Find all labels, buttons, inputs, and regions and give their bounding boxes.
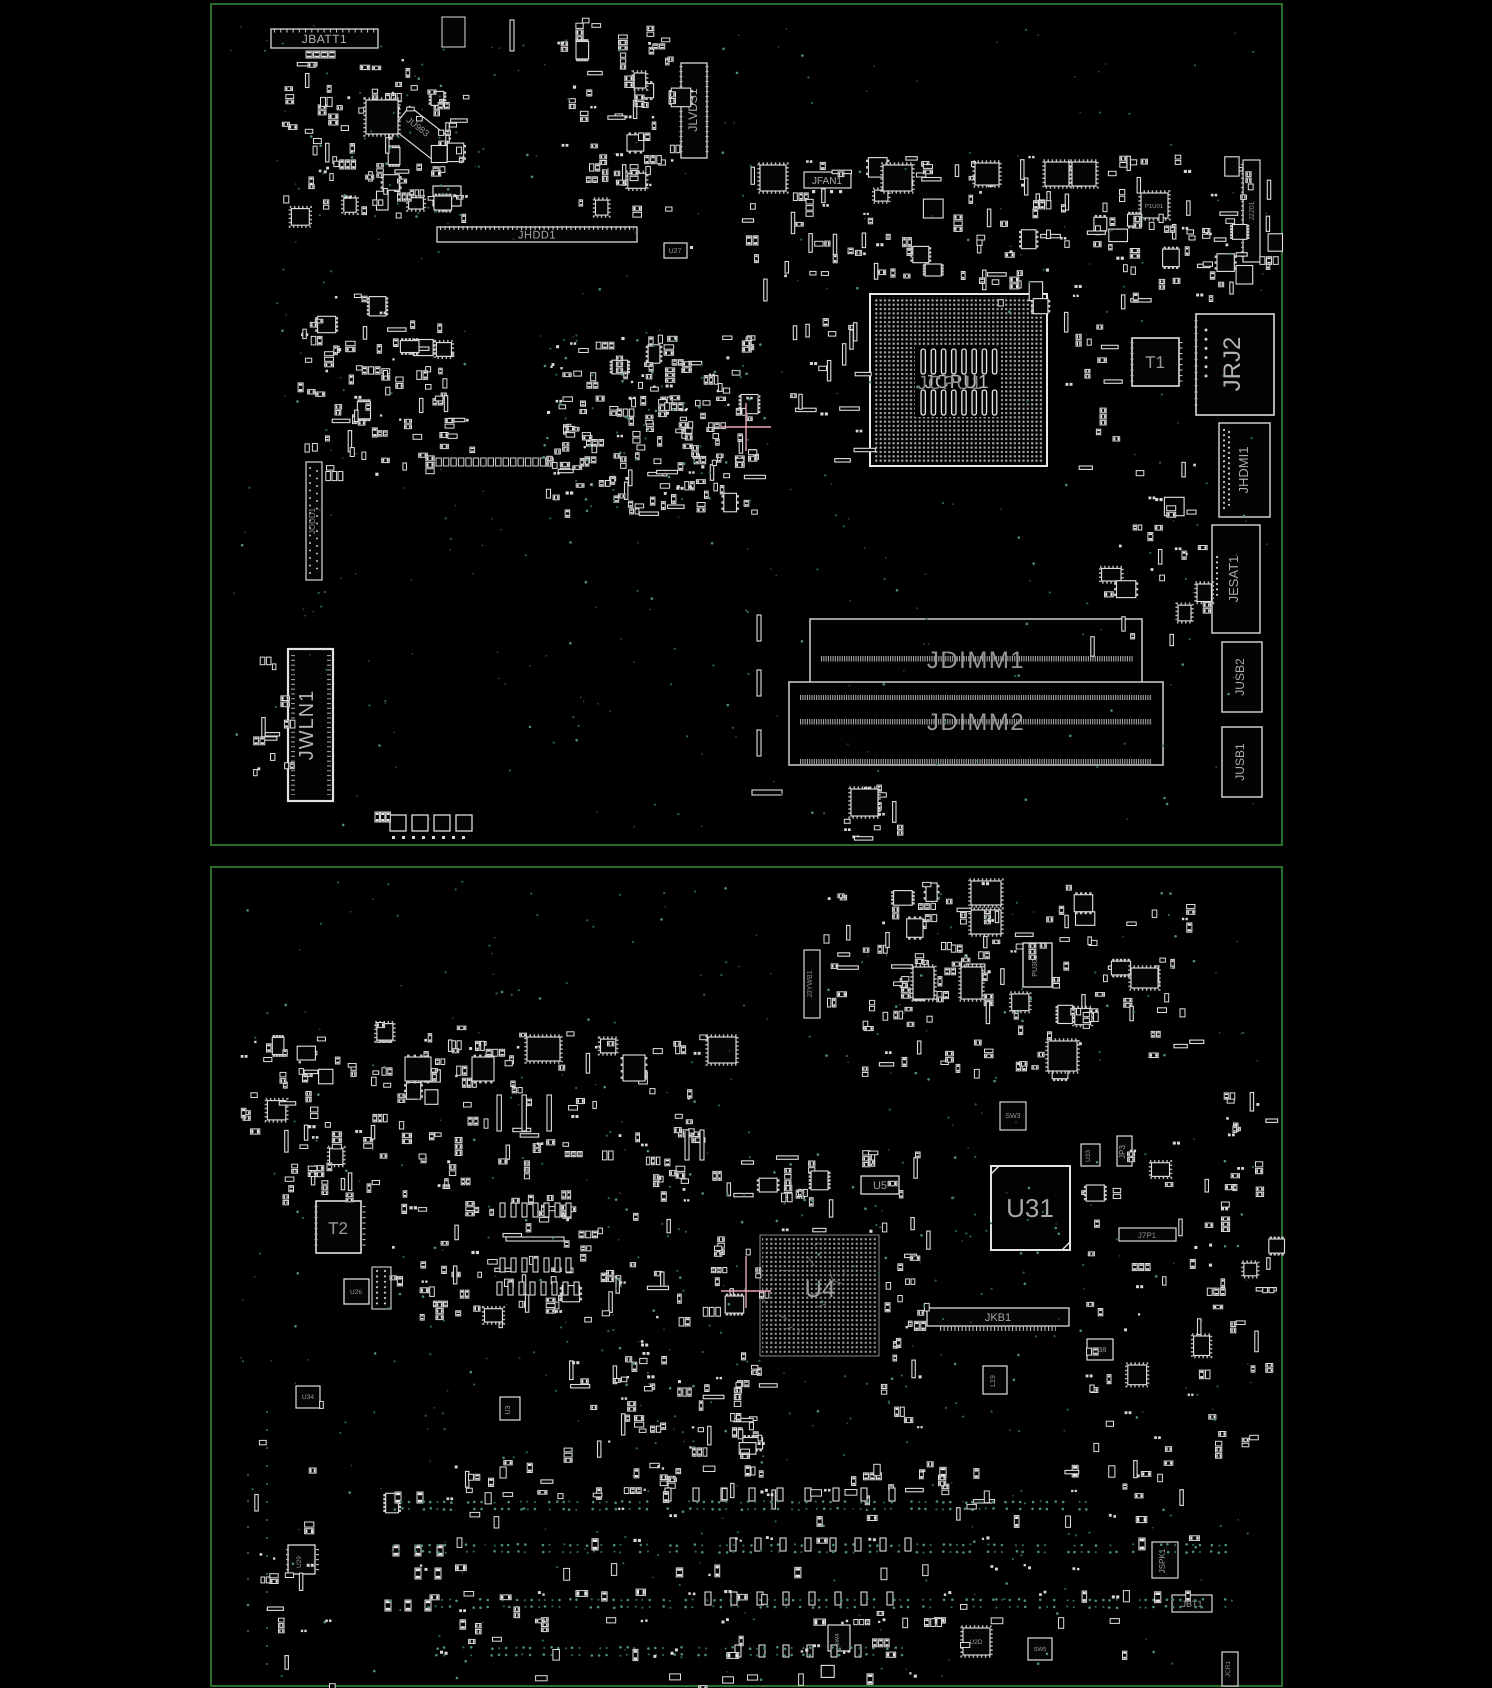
svg-text:U4: U4 <box>805 1276 836 1303</box>
svg-text:U33: U33 <box>1085 1150 1092 1162</box>
svg-text:J2201: J2201 <box>1249 201 1256 220</box>
svg-text:U31: U31 <box>1006 1193 1054 1223</box>
svg-text:JDIMM1: JDIMM1 <box>927 647 1025 674</box>
svg-text:JESAT1: JESAT1 <box>1226 556 1241 603</box>
svg-text:SW3: SW3 <box>1005 1113 1020 1120</box>
svg-text:JFAN1: JFAN1 <box>812 176 842 187</box>
svg-text:U5: U5 <box>873 1180 887 1192</box>
svg-text:JBATT1: JBATT1 <box>302 32 347 46</box>
svg-text:JKB1: JKB1 <box>985 1312 1011 1324</box>
svg-text:J7P1: J7P1 <box>1138 1231 1157 1240</box>
svg-text:JCPU1: JCPU1 <box>917 373 982 394</box>
svg-text:JHDD1: JHDD1 <box>518 229 556 241</box>
svg-text:JUSB2: JUSB2 <box>1233 658 1247 696</box>
svg-text:U26: U26 <box>350 1289 362 1296</box>
svg-text:JBT1: JBT1 <box>1181 1599 1202 1609</box>
svg-text:JSPK1: JSPK1 <box>1158 1548 1167 1573</box>
svg-text:J3YWB1: J3YWB1 <box>807 970 814 997</box>
svg-text:JUSB1: JUSB1 <box>1233 743 1247 781</box>
svg-text:JCR1: JCR1 <box>1225 1660 1232 1677</box>
svg-text:U2D: U2D <box>969 1639 982 1646</box>
svg-text:JWLN1: JWLN1 <box>296 690 318 761</box>
svg-text:JODD1: JODD1 <box>308 507 317 534</box>
svg-text:L19: L19 <box>990 1375 997 1387</box>
svg-text:U27: U27 <box>669 248 682 255</box>
svg-text:P1U01: P1U01 <box>1145 204 1164 210</box>
svg-text:SW5: SW5 <box>1033 1647 1047 1653</box>
svg-text:T2: T2 <box>328 1219 348 1238</box>
svg-text:U3: U3 <box>505 1405 512 1414</box>
svg-text:JDIMM2: JDIMM2 <box>927 709 1025 736</box>
svg-text:JHDMI1: JHDMI1 <box>1236 447 1251 494</box>
svg-text:JP3: JP3 <box>1118 1145 1127 1159</box>
svg-text:JRJ2: JRJ2 <box>1219 337 1246 392</box>
svg-text:U29: U29 <box>296 1556 303 1568</box>
svg-text:T1: T1 <box>1145 353 1165 372</box>
svg-text:U34: U34 <box>302 1394 314 1401</box>
